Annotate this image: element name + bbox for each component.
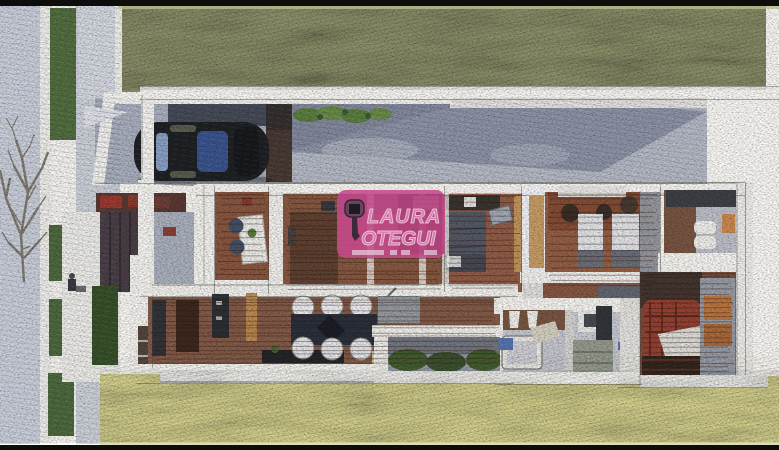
svg-text:OTEGUI: OTEGUI (361, 228, 436, 250)
svg-text:LAURA: LAURA (367, 206, 441, 228)
